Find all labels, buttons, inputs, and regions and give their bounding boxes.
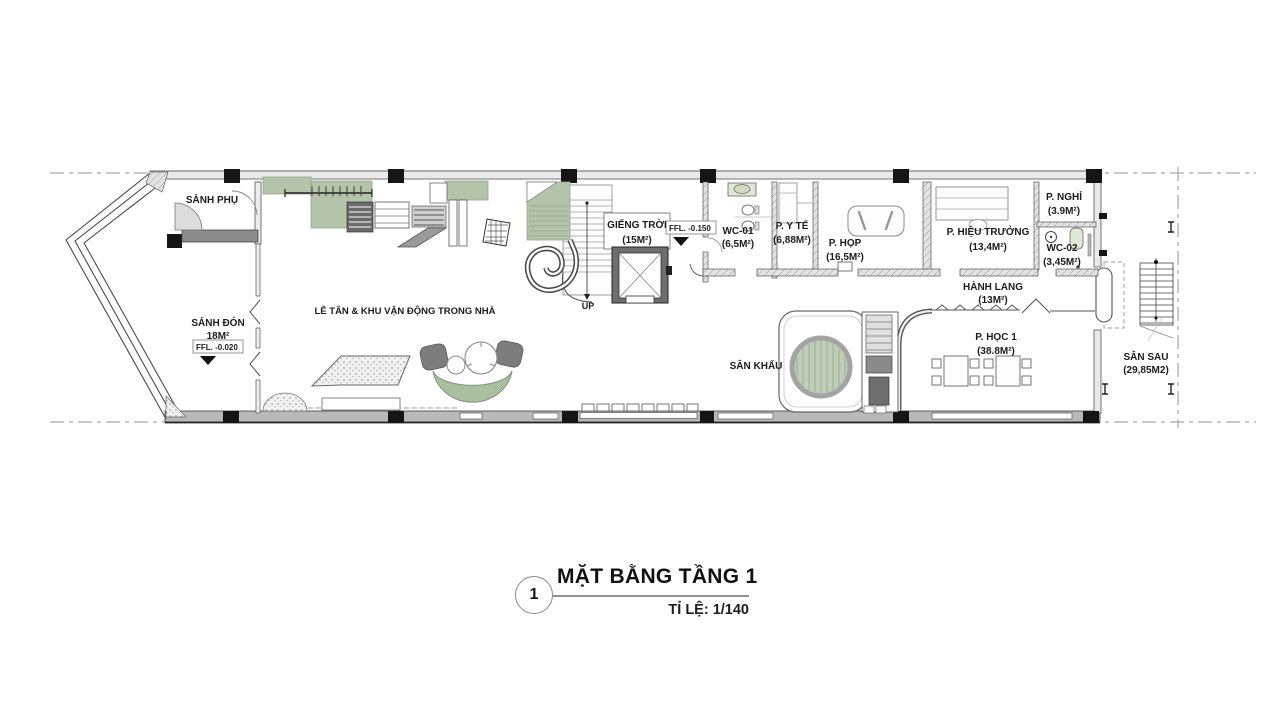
label-sanh-don: SẢNH ĐÓN bbox=[191, 316, 244, 329]
label-sanh-phu: SẢNH PHỤ bbox=[186, 193, 238, 206]
facade-corner-hatch bbox=[146, 172, 168, 192]
label-p-hop: P. HỌP bbox=[829, 238, 862, 249]
elevator bbox=[612, 247, 672, 303]
label-sanh-don-area: 18M² bbox=[207, 331, 230, 342]
floor-plan-drawing: SẢNH PHỤ SẢNH ĐÓN 18M² LỄ TÂN & KHU VẬN … bbox=[0, 0, 1280, 540]
scale-label: TỈ LỆ: 1/140 bbox=[559, 602, 749, 618]
curved-facade bbox=[66, 173, 178, 419]
label-p-y-te-area: (6,88M²) bbox=[773, 235, 811, 246]
label-san-khau: SÂN KHẤU bbox=[730, 359, 783, 372]
label-p-nghi: P. NGHỈ bbox=[1046, 190, 1082, 203]
label-hanh-lang: HÀNH LANG bbox=[963, 280, 1023, 293]
label-gieng-troi-area: (15M²) bbox=[622, 235, 651, 246]
label-wc-02-area: (3,45M²) bbox=[1043, 257, 1081, 268]
label-wc-02: WC-02 bbox=[1046, 243, 1078, 254]
pantry-strip bbox=[862, 312, 898, 413]
meeting-room-table bbox=[848, 206, 904, 236]
classroom-furniture bbox=[932, 356, 1031, 386]
label-p-y-te: P. Y TẾ bbox=[776, 219, 809, 232]
play-area bbox=[263, 177, 576, 290]
title-underline bbox=[553, 595, 749, 597]
label-p-hoc-1: P. HỌC 1 bbox=[975, 332, 1017, 343]
exterior-stair bbox=[1140, 258, 1173, 341]
stage-platform bbox=[779, 311, 867, 412]
label-san-sau-area: (29,85M2) bbox=[1123, 365, 1169, 376]
lounge-furniture bbox=[312, 340, 524, 403]
label-p-hoc-1-area: (38.8M²) bbox=[977, 346, 1015, 357]
label-p-nghi-area: (3.9M²) bbox=[1048, 206, 1080, 217]
label-wc-01: WC-01 bbox=[722, 226, 754, 237]
label-p-hieu-truong: P. HIỆU TRƯỞNG bbox=[947, 225, 1030, 238]
window-seat-row bbox=[582, 404, 698, 411]
page-title: MẶT BẰNG TẦNG 1 bbox=[557, 565, 757, 589]
title-block: 1 MẶT BẰNG TẦNG 1 TỈ LỆ: 1/140 bbox=[512, 562, 772, 632]
label-p-hieu-truong-area: (13,4M²) bbox=[969, 242, 1007, 253]
label-ffl-entrance: FFL. -0.020 bbox=[196, 343, 238, 352]
sheet-number: 1 bbox=[530, 586, 539, 604]
label-gieng-troi: GIẾNG TRỜI bbox=[607, 218, 667, 231]
label-ffl-lobby: FFL. -0.150 bbox=[669, 224, 711, 233]
label-up: UP bbox=[582, 301, 595, 311]
label-san-sau: SÂN SAU bbox=[1123, 350, 1168, 363]
wc1-fixtures bbox=[728, 183, 772, 231]
label-p-hop-area: (16,5M²) bbox=[826, 252, 864, 263]
facade-planter bbox=[166, 396, 186, 417]
label-wc-01-area: (6,5M²) bbox=[722, 239, 754, 250]
floor-plan-sheet: SẢNH PHỤ SẢNH ĐÓN 18M² LỄ TÂN & KHU VẬN … bbox=[0, 0, 1280, 720]
label-hanh-lang-area: (13M²) bbox=[978, 295, 1007, 306]
sheet-number-circle: 1 bbox=[515, 576, 553, 614]
label-le-tan: LỄ TÂN & KHU VẬN ĐỘNG TRONG NHÀ bbox=[314, 305, 495, 317]
